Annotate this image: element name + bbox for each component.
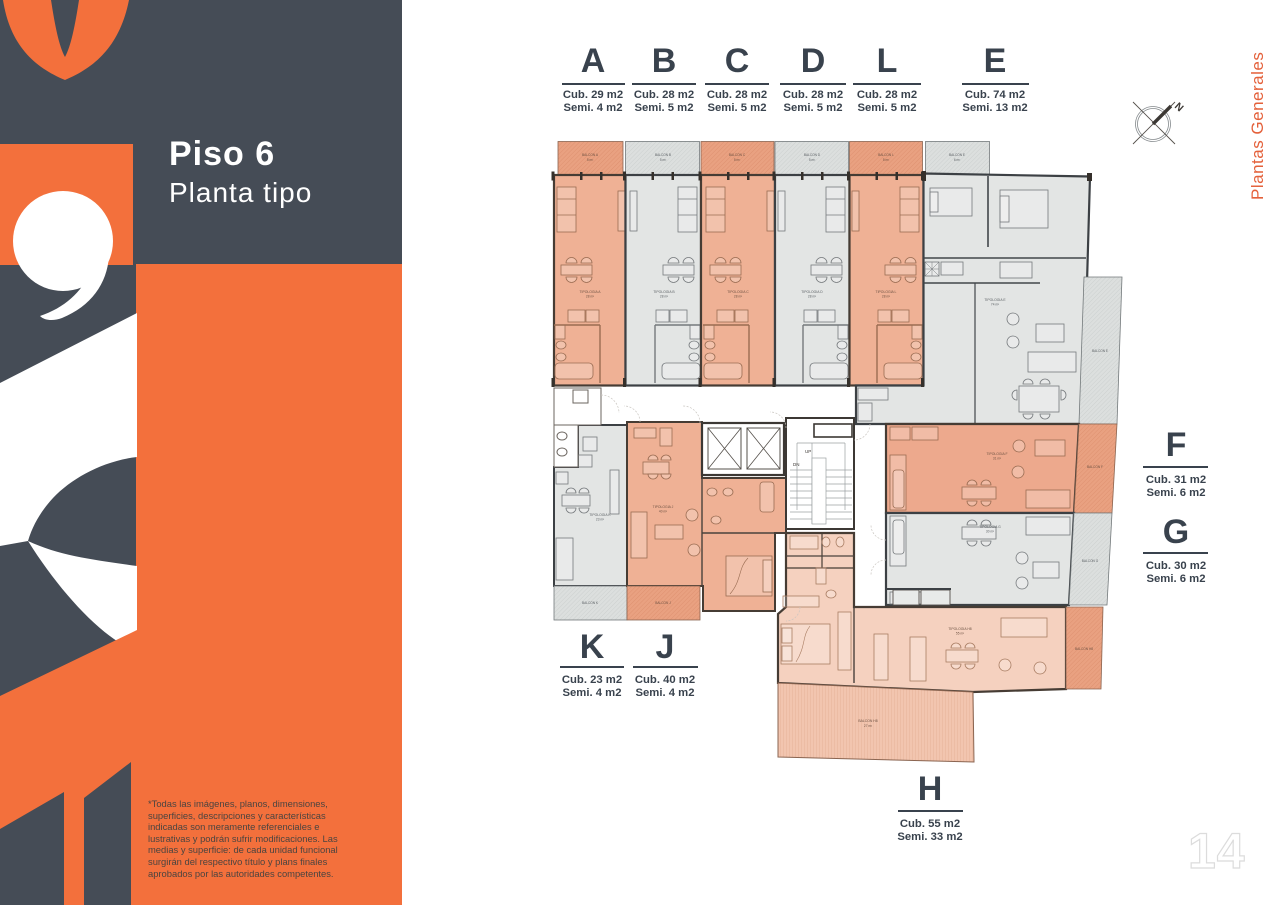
svg-text:28 m²: 28 m² xyxy=(734,295,742,299)
svg-text:28 m²: 28 m² xyxy=(882,295,890,299)
svg-text:28 m²: 28 m² xyxy=(660,295,668,299)
svg-text:31 m²: 31 m² xyxy=(993,457,1001,461)
svg-text:TIPOLOGIA A: TIPOLOGIA A xyxy=(579,290,601,294)
svg-text:30 m²: 30 m² xyxy=(986,530,994,534)
svg-text:55 m²: 55 m² xyxy=(956,632,964,636)
svg-text:TIPOLOGIA J: TIPOLOGIA J xyxy=(653,505,674,509)
svg-text:BALCON B: BALCON B xyxy=(655,153,671,157)
svg-text:5 m²: 5 m² xyxy=(883,158,889,162)
svg-text:TIPOLOGIA G: TIPOLOGIA G xyxy=(979,525,1001,529)
svg-text:BALCON J: BALCON J xyxy=(655,601,671,605)
svg-text:DN: DN xyxy=(793,462,800,467)
svg-text:BALCON A: BALCON A xyxy=(582,153,599,157)
svg-text:5 m²: 5 m² xyxy=(734,158,740,162)
svg-text:TIPOLOGIA B: TIPOLOGIA B xyxy=(653,290,675,294)
svg-text:BALCON K: BALCON K xyxy=(582,601,599,605)
svg-text:TIPOLOGIA H8: TIPOLOGIA H8 xyxy=(948,627,971,631)
svg-text:BALCON G: BALCON G xyxy=(1082,559,1099,563)
svg-text:5 m²: 5 m² xyxy=(587,158,593,162)
svg-text:TIPOLOGIA L: TIPOLOGIA L xyxy=(876,290,897,294)
svg-text:6 m²: 6 m² xyxy=(954,158,960,162)
svg-text:BALCON E: BALCON E xyxy=(949,153,965,157)
svg-text:40 m²: 40 m² xyxy=(659,510,667,514)
svg-text:TIPOLOGIA C: TIPOLOGIA C xyxy=(727,290,749,294)
svg-text:5 m²: 5 m² xyxy=(660,158,666,162)
svg-text:28 m²: 28 m² xyxy=(808,295,816,299)
svg-text:28 m²: 28 m² xyxy=(586,295,594,299)
svg-text:23 m²: 23 m² xyxy=(596,518,604,522)
svg-text:UP: UP xyxy=(805,449,811,454)
svg-text:BALCON H8: BALCON H8 xyxy=(1075,647,1093,651)
svg-text:BALCON L: BALCON L xyxy=(878,153,894,157)
svg-text:TIPOLOGIA D: TIPOLOGIA D xyxy=(801,290,823,294)
svg-text:BALCON H8: BALCON H8 xyxy=(858,719,877,723)
svg-text:TIPOLOGIA K: TIPOLOGIA K xyxy=(589,513,611,517)
svg-text:5 m²: 5 m² xyxy=(809,158,815,162)
svg-text:TIPOLOGIA E: TIPOLOGIA E xyxy=(984,298,1006,302)
svg-text:BALCON C: BALCON C xyxy=(729,153,746,157)
svg-text:74 m²: 74 m² xyxy=(991,303,999,307)
svg-text:BALCON F: BALCON F xyxy=(1087,465,1103,469)
svg-text:BALCON E: BALCON E xyxy=(1092,349,1108,353)
svg-text:27 m²: 27 m² xyxy=(864,724,872,728)
svg-text:BALCON D: BALCON D xyxy=(804,153,821,157)
svg-text:TIPOLOGIA F: TIPOLOGIA F xyxy=(986,452,1007,456)
